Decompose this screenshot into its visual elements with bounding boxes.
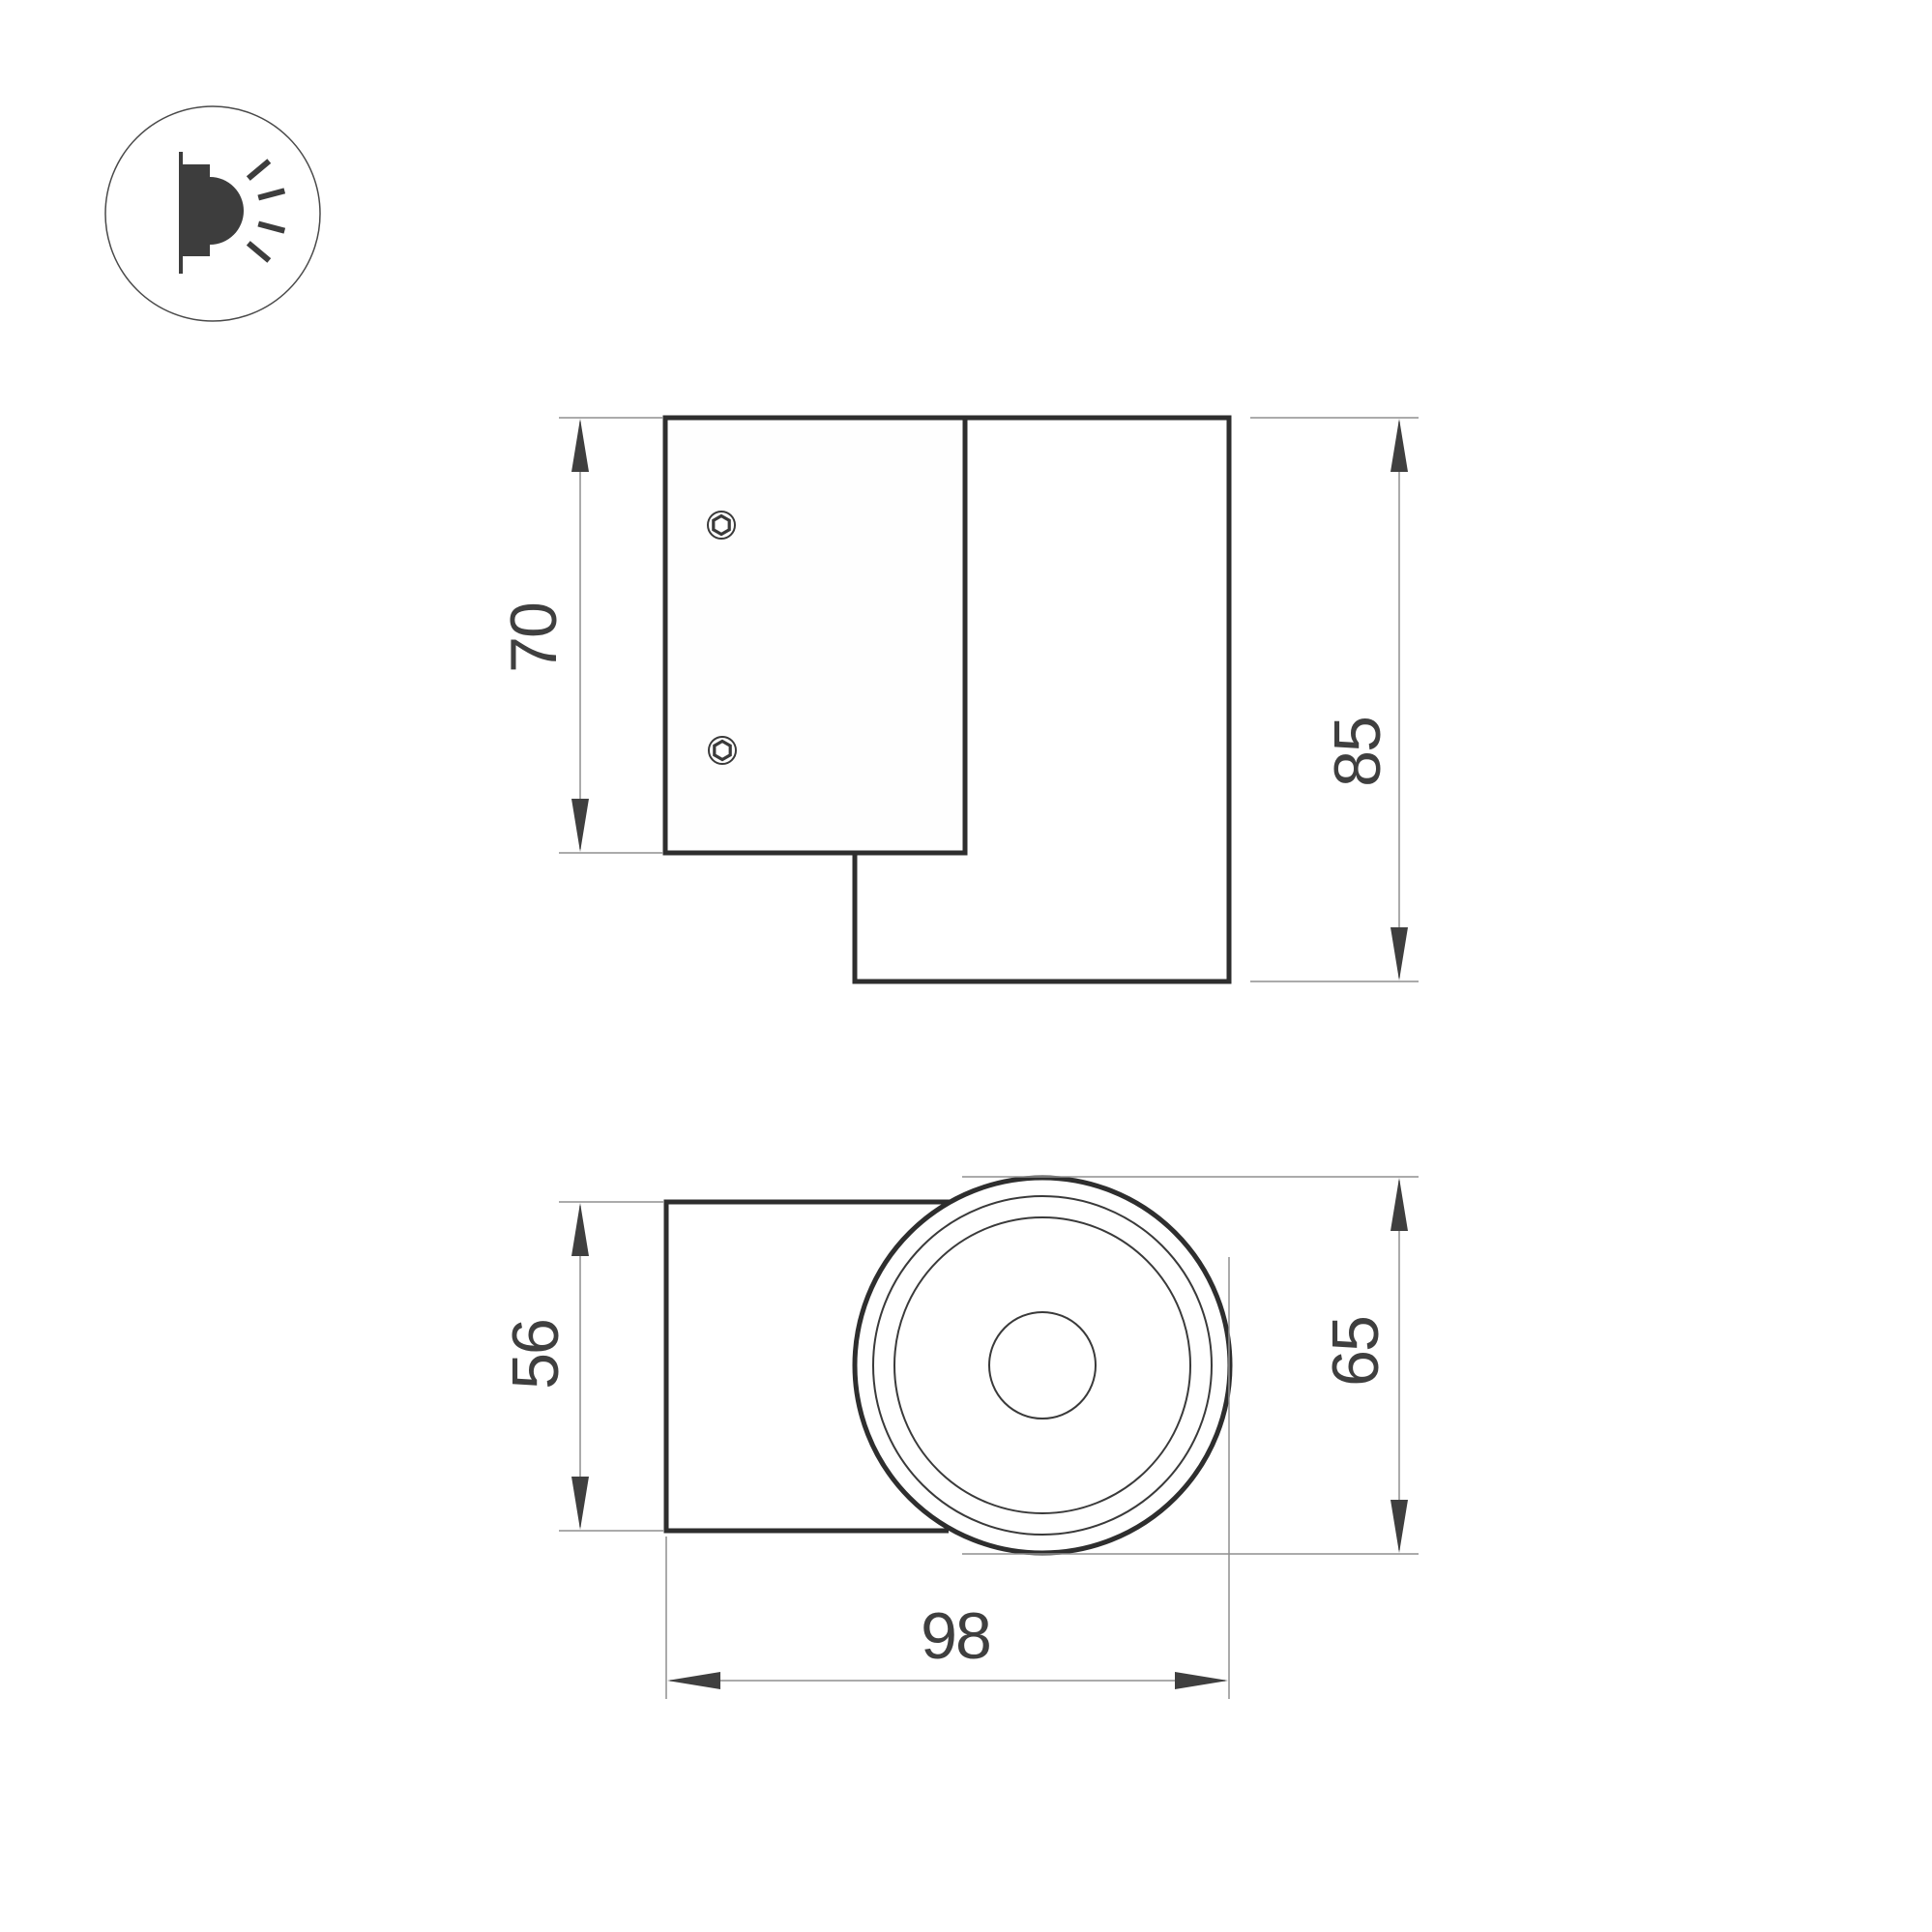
arrowhead-left xyxy=(667,1672,720,1689)
dim-label-65: 65 xyxy=(1319,1317,1392,1387)
cylinder-outer-circle xyxy=(855,1178,1230,1553)
wall-line-icon xyxy=(179,152,183,274)
arrowhead-up xyxy=(1390,1178,1408,1231)
arrowhead-down xyxy=(1390,1500,1408,1553)
dimension-overall-height: 85 xyxy=(1250,418,1419,981)
dim-label-56: 56 xyxy=(499,1320,572,1390)
arrowhead-down xyxy=(571,799,589,852)
arrowhead-right xyxy=(1175,1672,1228,1689)
screw-top-icon xyxy=(708,512,735,539)
dimension-plate-height: 70 xyxy=(497,418,663,853)
side-view: 70 85 xyxy=(497,418,1419,981)
dimension-drawing: 70 85 56 xyxy=(0,0,1932,1932)
dim-label-98: 98 xyxy=(921,1599,990,1673)
mounting-plate-outline xyxy=(665,418,965,853)
product-type-icon xyxy=(105,106,320,321)
lamp-body-icon xyxy=(183,164,210,256)
dim-label-85: 85 xyxy=(1321,717,1394,787)
arrowhead-down xyxy=(1390,927,1408,981)
drawing-page: 70 85 56 xyxy=(0,0,1932,1932)
front-view: 56 65 98 xyxy=(499,1177,1419,1699)
arrowhead-down xyxy=(571,1477,589,1530)
dimension-body-width: 56 xyxy=(499,1202,663,1531)
arrowhead-up xyxy=(571,1203,589,1256)
arrowhead-up xyxy=(571,419,589,472)
screw-bottom-icon xyxy=(709,737,736,764)
arrowhead-up xyxy=(1390,419,1408,472)
dim-label-70: 70 xyxy=(497,603,571,673)
